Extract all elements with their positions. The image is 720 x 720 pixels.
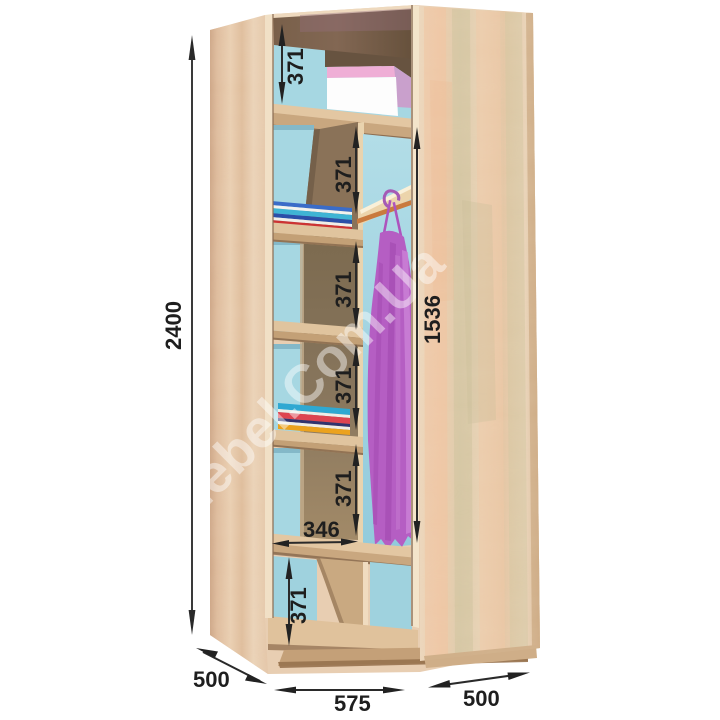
svg-text:500: 500	[193, 667, 230, 692]
svg-text:2400: 2400	[161, 301, 186, 350]
svg-text:371: 371	[283, 48, 308, 85]
svg-text:575: 575	[334, 691, 371, 716]
svg-text:346: 346	[303, 517, 340, 542]
svg-text:371: 371	[286, 587, 311, 624]
svg-text:371: 371	[331, 271, 356, 308]
svg-text:1536: 1536	[420, 295, 445, 344]
svg-text:371: 371	[331, 470, 356, 507]
svg-text:371: 371	[331, 367, 356, 404]
svg-text:371: 371	[331, 156, 356, 193]
svg-text:500: 500	[463, 686, 500, 711]
